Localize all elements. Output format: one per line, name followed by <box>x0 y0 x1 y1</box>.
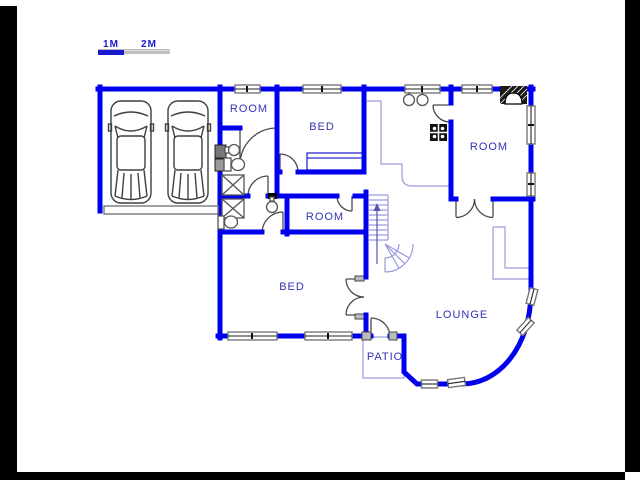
shower-icon <box>222 199 244 218</box>
window-top-4 <box>462 85 492 93</box>
bed-label-top: BED <box>309 121 335 133</box>
letterbox-right <box>625 0 640 472</box>
bed-label-lower: BED <box>279 281 305 293</box>
scale-bar-1m-segment <box>98 50 124 55</box>
floorplan-drawing: 1M 2M ROOM BED ROOM ROOM BED LOUNGE PATI… <box>0 0 640 480</box>
window-top-1 <box>235 85 260 93</box>
fireplace-icon <box>500 86 527 104</box>
garage-door <box>104 206 218 214</box>
window-bed2-2 <box>305 332 352 340</box>
toilet-icon <box>225 216 238 228</box>
toilet-icon <box>218 216 224 229</box>
room-label-middle: ROOM <box>306 211 344 223</box>
window-top-3 <box>405 85 440 93</box>
patio-door-jamb-left <box>362 332 371 340</box>
toilet-icon <box>232 159 245 171</box>
stove-icon <box>430 124 447 141</box>
patio-door-jamb-right <box>389 332 397 340</box>
window-right-1 <box>527 106 535 144</box>
floorplan-page: 1M 2M ROOM BED ROOM ROOM BED LOUNGE PATI… <box>0 0 640 480</box>
letterbox-left <box>0 6 17 480</box>
patio-label: PATIO <box>367 351 403 363</box>
window-right-2 <box>527 173 535 196</box>
tap-icon <box>270 197 274 201</box>
room-label-top: ROOM <box>230 103 268 115</box>
scale-bar-2m-segment <box>124 51 170 54</box>
basin-icon <box>229 145 240 156</box>
window-top-2 <box>303 85 341 93</box>
page-background <box>0 0 640 480</box>
toilet-icon <box>224 158 231 171</box>
sink-icon <box>404 95 415 106</box>
scale-label-1m: 1M <box>103 39 119 50</box>
sink-icon <box>417 95 428 106</box>
basin-icon <box>267 202 278 213</box>
room-label-right: ROOM <box>470 141 508 153</box>
window-curve-1 <box>422 380 438 388</box>
letterbox-bottom <box>17 472 625 480</box>
window-bed2-1 <box>228 332 277 340</box>
window-curve-2 <box>448 377 466 387</box>
scale-label-2m: 2M <box>141 39 157 50</box>
shower-icon <box>222 175 244 195</box>
lounge-label: LOUNGE <box>436 309 488 321</box>
